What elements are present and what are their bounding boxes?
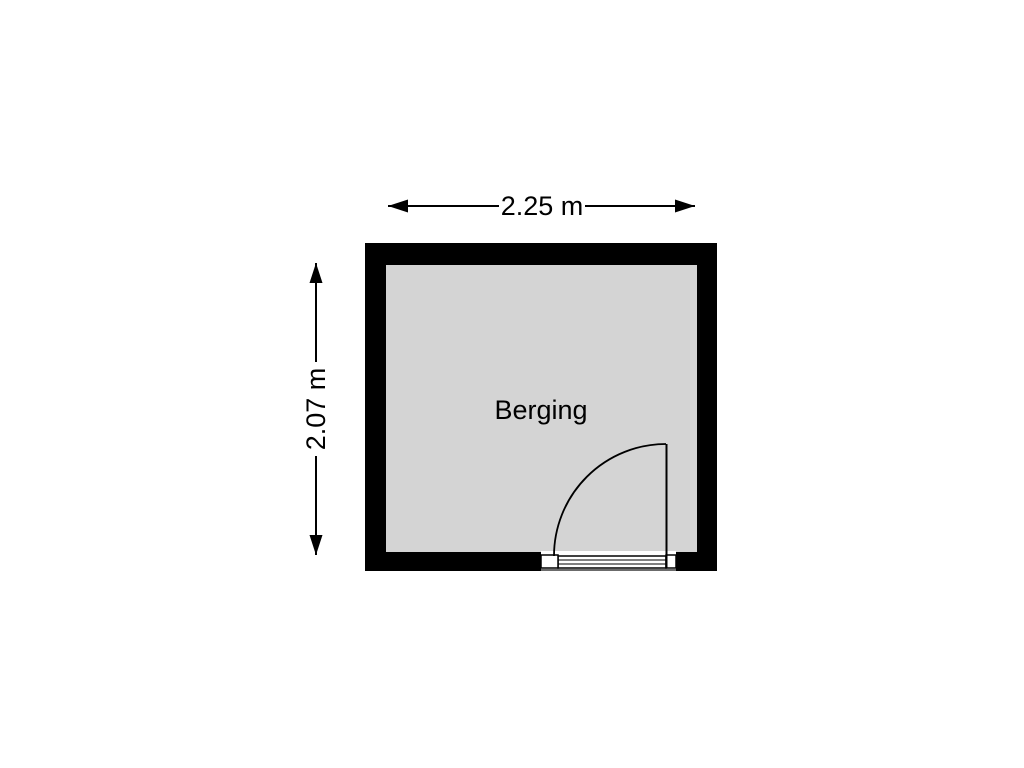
arrowhead-down-icon xyxy=(310,535,323,555)
floorplan-drawing: 2.25 m 2.07 m Berging xyxy=(0,0,1024,768)
floorplan-page: 2.25 m 2.07 m Berging xyxy=(0,0,1024,768)
dimension-height: 2.07 m xyxy=(301,263,331,555)
dimension-height-label: 2.07 m xyxy=(301,368,331,451)
door-jamb-left xyxy=(541,555,558,568)
room-label: Berging xyxy=(494,395,587,425)
door-threshold xyxy=(558,556,666,568)
dimension-width-label: 2.25 m xyxy=(501,191,584,221)
dimension-width: 2.25 m xyxy=(388,191,695,221)
arrowhead-left-icon xyxy=(388,200,408,213)
arrowhead-up-icon xyxy=(310,263,323,283)
arrowhead-right-icon xyxy=(675,200,695,213)
